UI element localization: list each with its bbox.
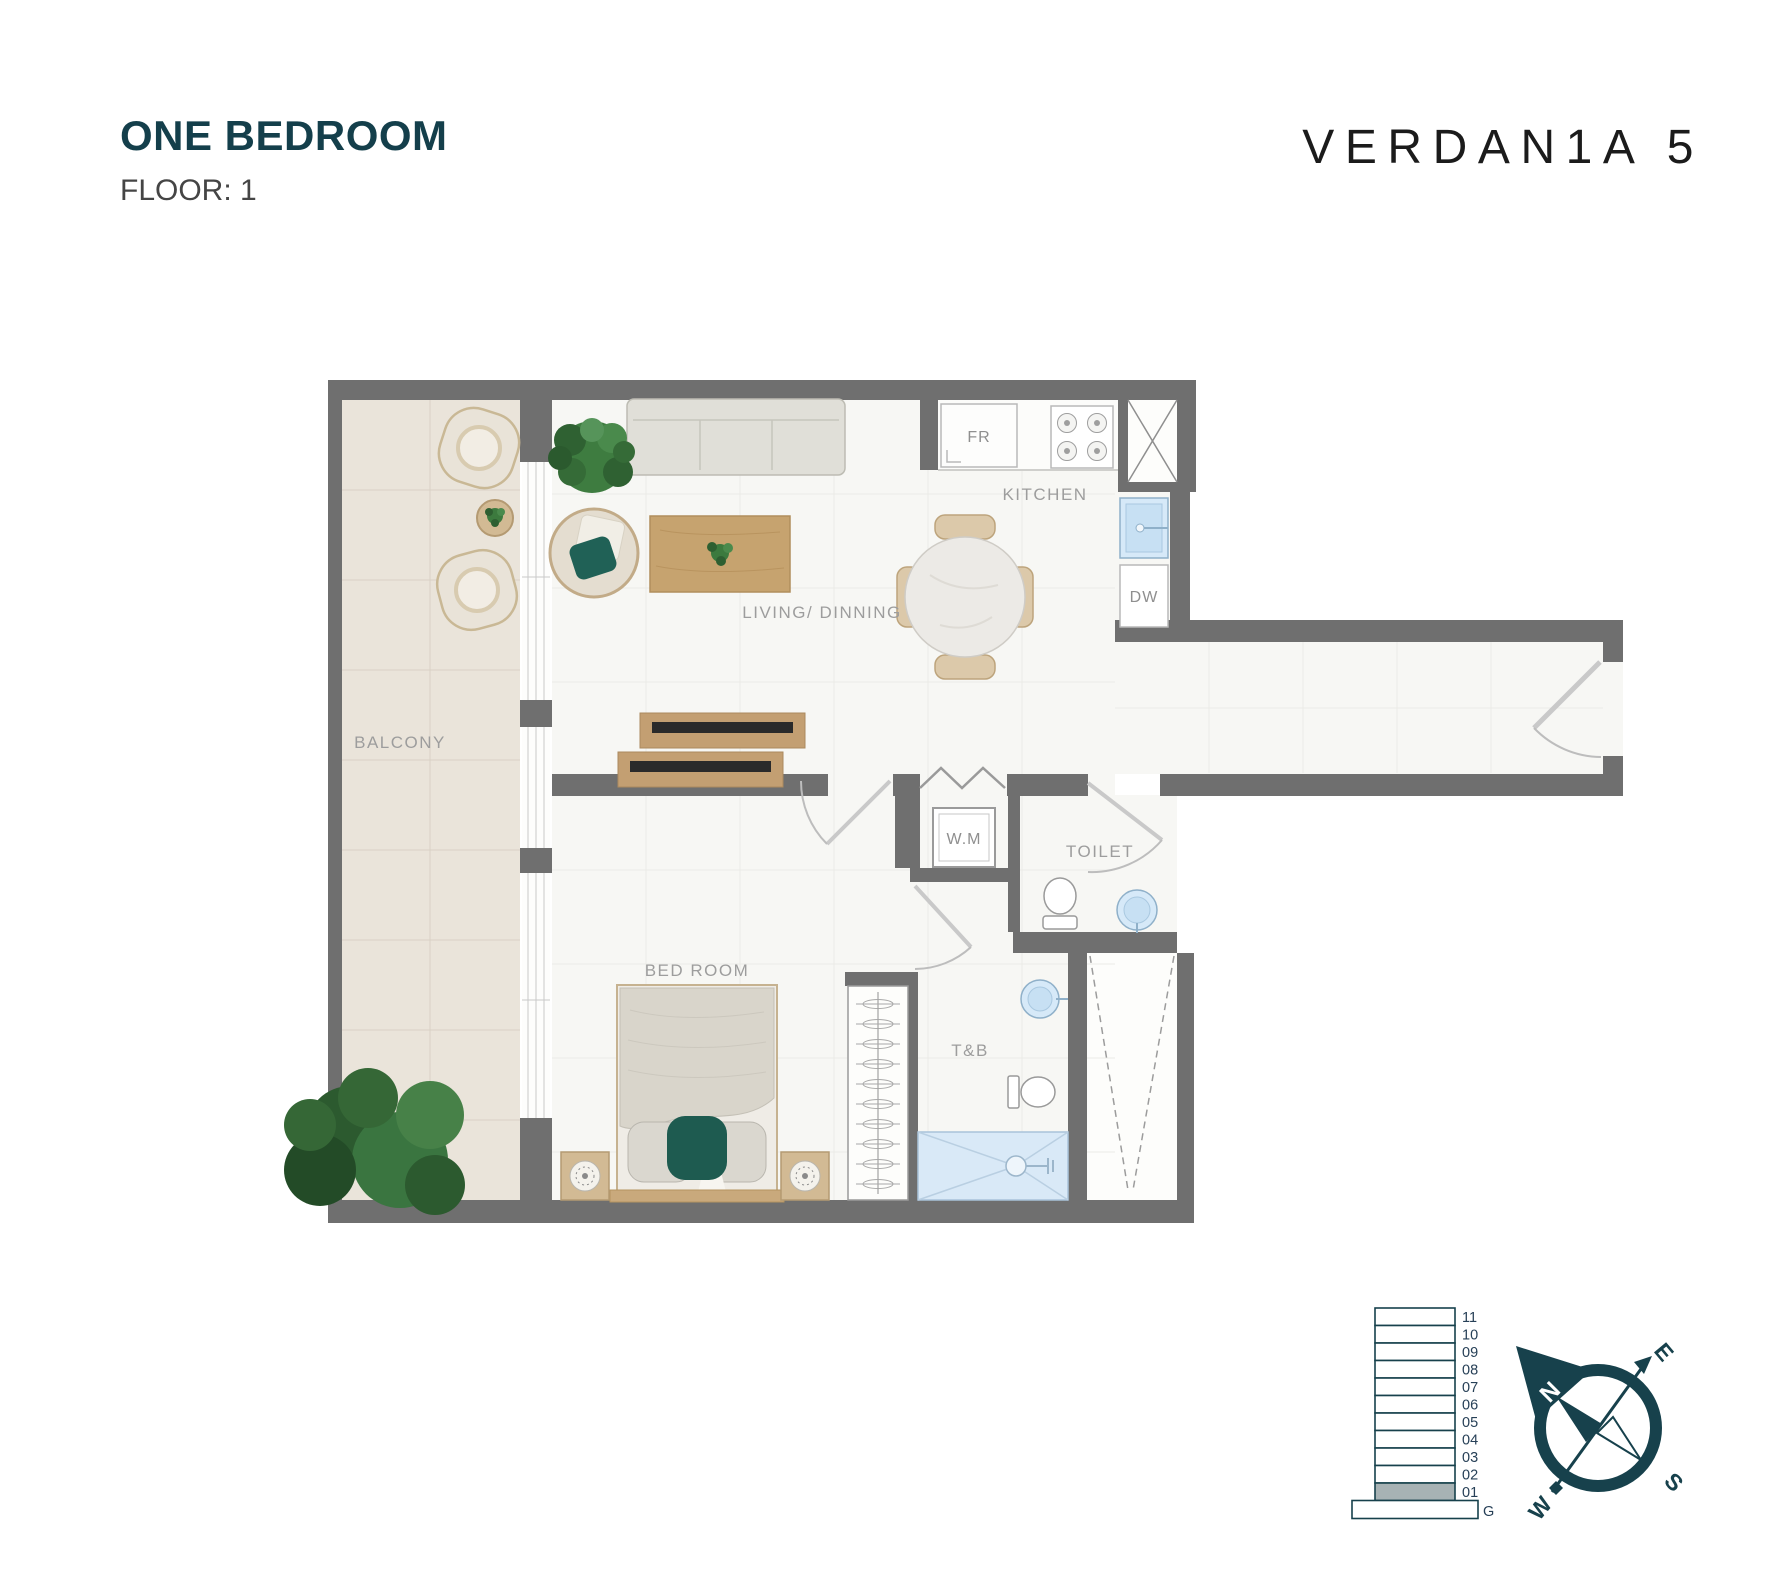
- armchair: [550, 509, 638, 597]
- tb-wc: [1021, 1077, 1055, 1107]
- compass-north-pointer: [1516, 1346, 1592, 1420]
- level-label-08: 08: [1462, 1363, 1478, 1379]
- balcony-side-table: [477, 500, 513, 536]
- kitchen-label: KITCHEN: [1002, 485, 1087, 504]
- ground-floor-base: [1352, 1501, 1478, 1519]
- bed-teal-pillow: [667, 1116, 727, 1180]
- wall-corridor-bottom: [1160, 774, 1623, 796]
- ground-label: G: [1483, 1504, 1494, 1520]
- level-label-02: 02: [1462, 1468, 1478, 1484]
- bed: [610, 985, 784, 1202]
- level-label-01: 01: [1462, 1485, 1478, 1501]
- wall-top: [328, 380, 1196, 400]
- compass: N E S W: [1516, 1338, 1689, 1525]
- level-label-04: 04: [1462, 1433, 1478, 1449]
- wall-corridor-top: [1115, 620, 1623, 642]
- entry-threshold: [1603, 662, 1623, 757]
- living-dining-label: LIVING/ DINNING: [742, 603, 901, 622]
- level-label-11: 11: [1462, 1310, 1477, 1326]
- coffee-table: [650, 516, 790, 592]
- compass-w-label: W: [1523, 1491, 1557, 1525]
- compass-west-diamond: [1549, 1481, 1563, 1495]
- kitchen-sink: [1120, 498, 1168, 558]
- balcony-windows: [522, 462, 550, 1118]
- level-label-06: 06: [1462, 1398, 1478, 1414]
- level-label-05: 05: [1462, 1415, 1478, 1431]
- compass-e-label: E: [1649, 1338, 1679, 1366]
- level-label-03: 03: [1462, 1450, 1478, 1466]
- shower: [918, 1132, 1068, 1200]
- dining-table: [905, 537, 1025, 657]
- shaft-floor: [1087, 953, 1177, 1200]
- compass-needle-se: [1597, 1417, 1641, 1460]
- tb-label: T&B: [951, 1041, 989, 1060]
- level-label-07: 07: [1462, 1380, 1478, 1396]
- toilet-wc: [1044, 878, 1076, 914]
- dishwasher-label: DW: [1130, 589, 1159, 606]
- toilet-label: TOILET: [1066, 842, 1134, 861]
- bedroom-label: BED ROOM: [645, 961, 750, 980]
- highlighted-floor-01: [1375, 1483, 1455, 1501]
- wm-label: W.M: [947, 831, 982, 848]
- balcony-plant: [284, 1068, 465, 1215]
- level-label-09: 09: [1462, 1345, 1478, 1361]
- compass-needle-nw: [1556, 1396, 1602, 1442]
- balcony-label: BALCONY: [354, 733, 446, 752]
- level-label-10: 10: [1462, 1328, 1478, 1344]
- sofa: [627, 399, 845, 475]
- wardrobe: [848, 986, 908, 1200]
- compass-s-label: S: [1659, 1467, 1688, 1496]
- fridge-label: FR: [967, 429, 990, 446]
- compass-east-arrow: [1634, 1356, 1652, 1374]
- stove: [1051, 406, 1113, 468]
- floorplan-page: ONE BEDROOM FLOOR: 1 VERDAN1A 5: [0, 0, 1788, 1574]
- floor-plan-canvas: BALCONY LIVING/ DINNING KITCHEN BED ROOM…: [0, 0, 1788, 1574]
- building-floor-indicator: 11 10 09 08 07 06 05 04 03 02 01 G: [1352, 1308, 1494, 1520]
